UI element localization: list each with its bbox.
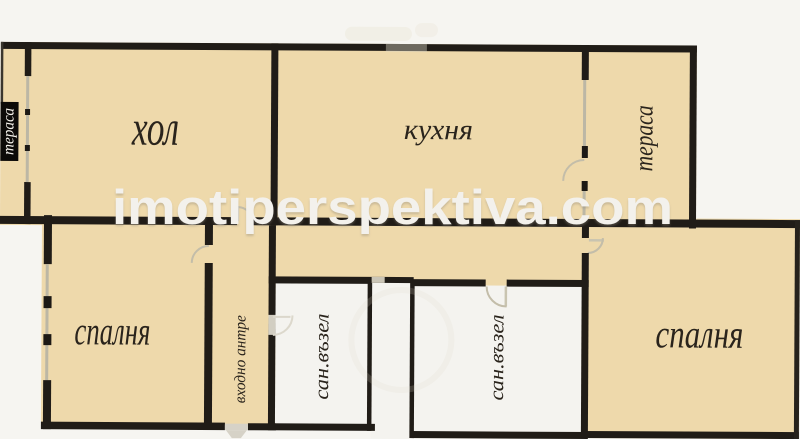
svg-text:тераса: тераса — [0, 108, 17, 155]
svg-text:спалня: спалня — [74, 308, 150, 353]
svg-text:сан.възел: сан.възел — [486, 314, 508, 400]
svg-text:входно антре: входно антре — [232, 315, 249, 403]
svg-text:imotiperspektiva.com: imotiperspektiva.com — [112, 181, 673, 235]
svg-text:спалня: спалня — [655, 311, 743, 356]
svg-text:тераса: тераса — [629, 105, 658, 171]
svg-text:хол: хол — [131, 100, 179, 156]
svg-text:сан.възел: сан.възел — [311, 313, 333, 399]
svg-text:кухня: кухня — [404, 114, 473, 146]
